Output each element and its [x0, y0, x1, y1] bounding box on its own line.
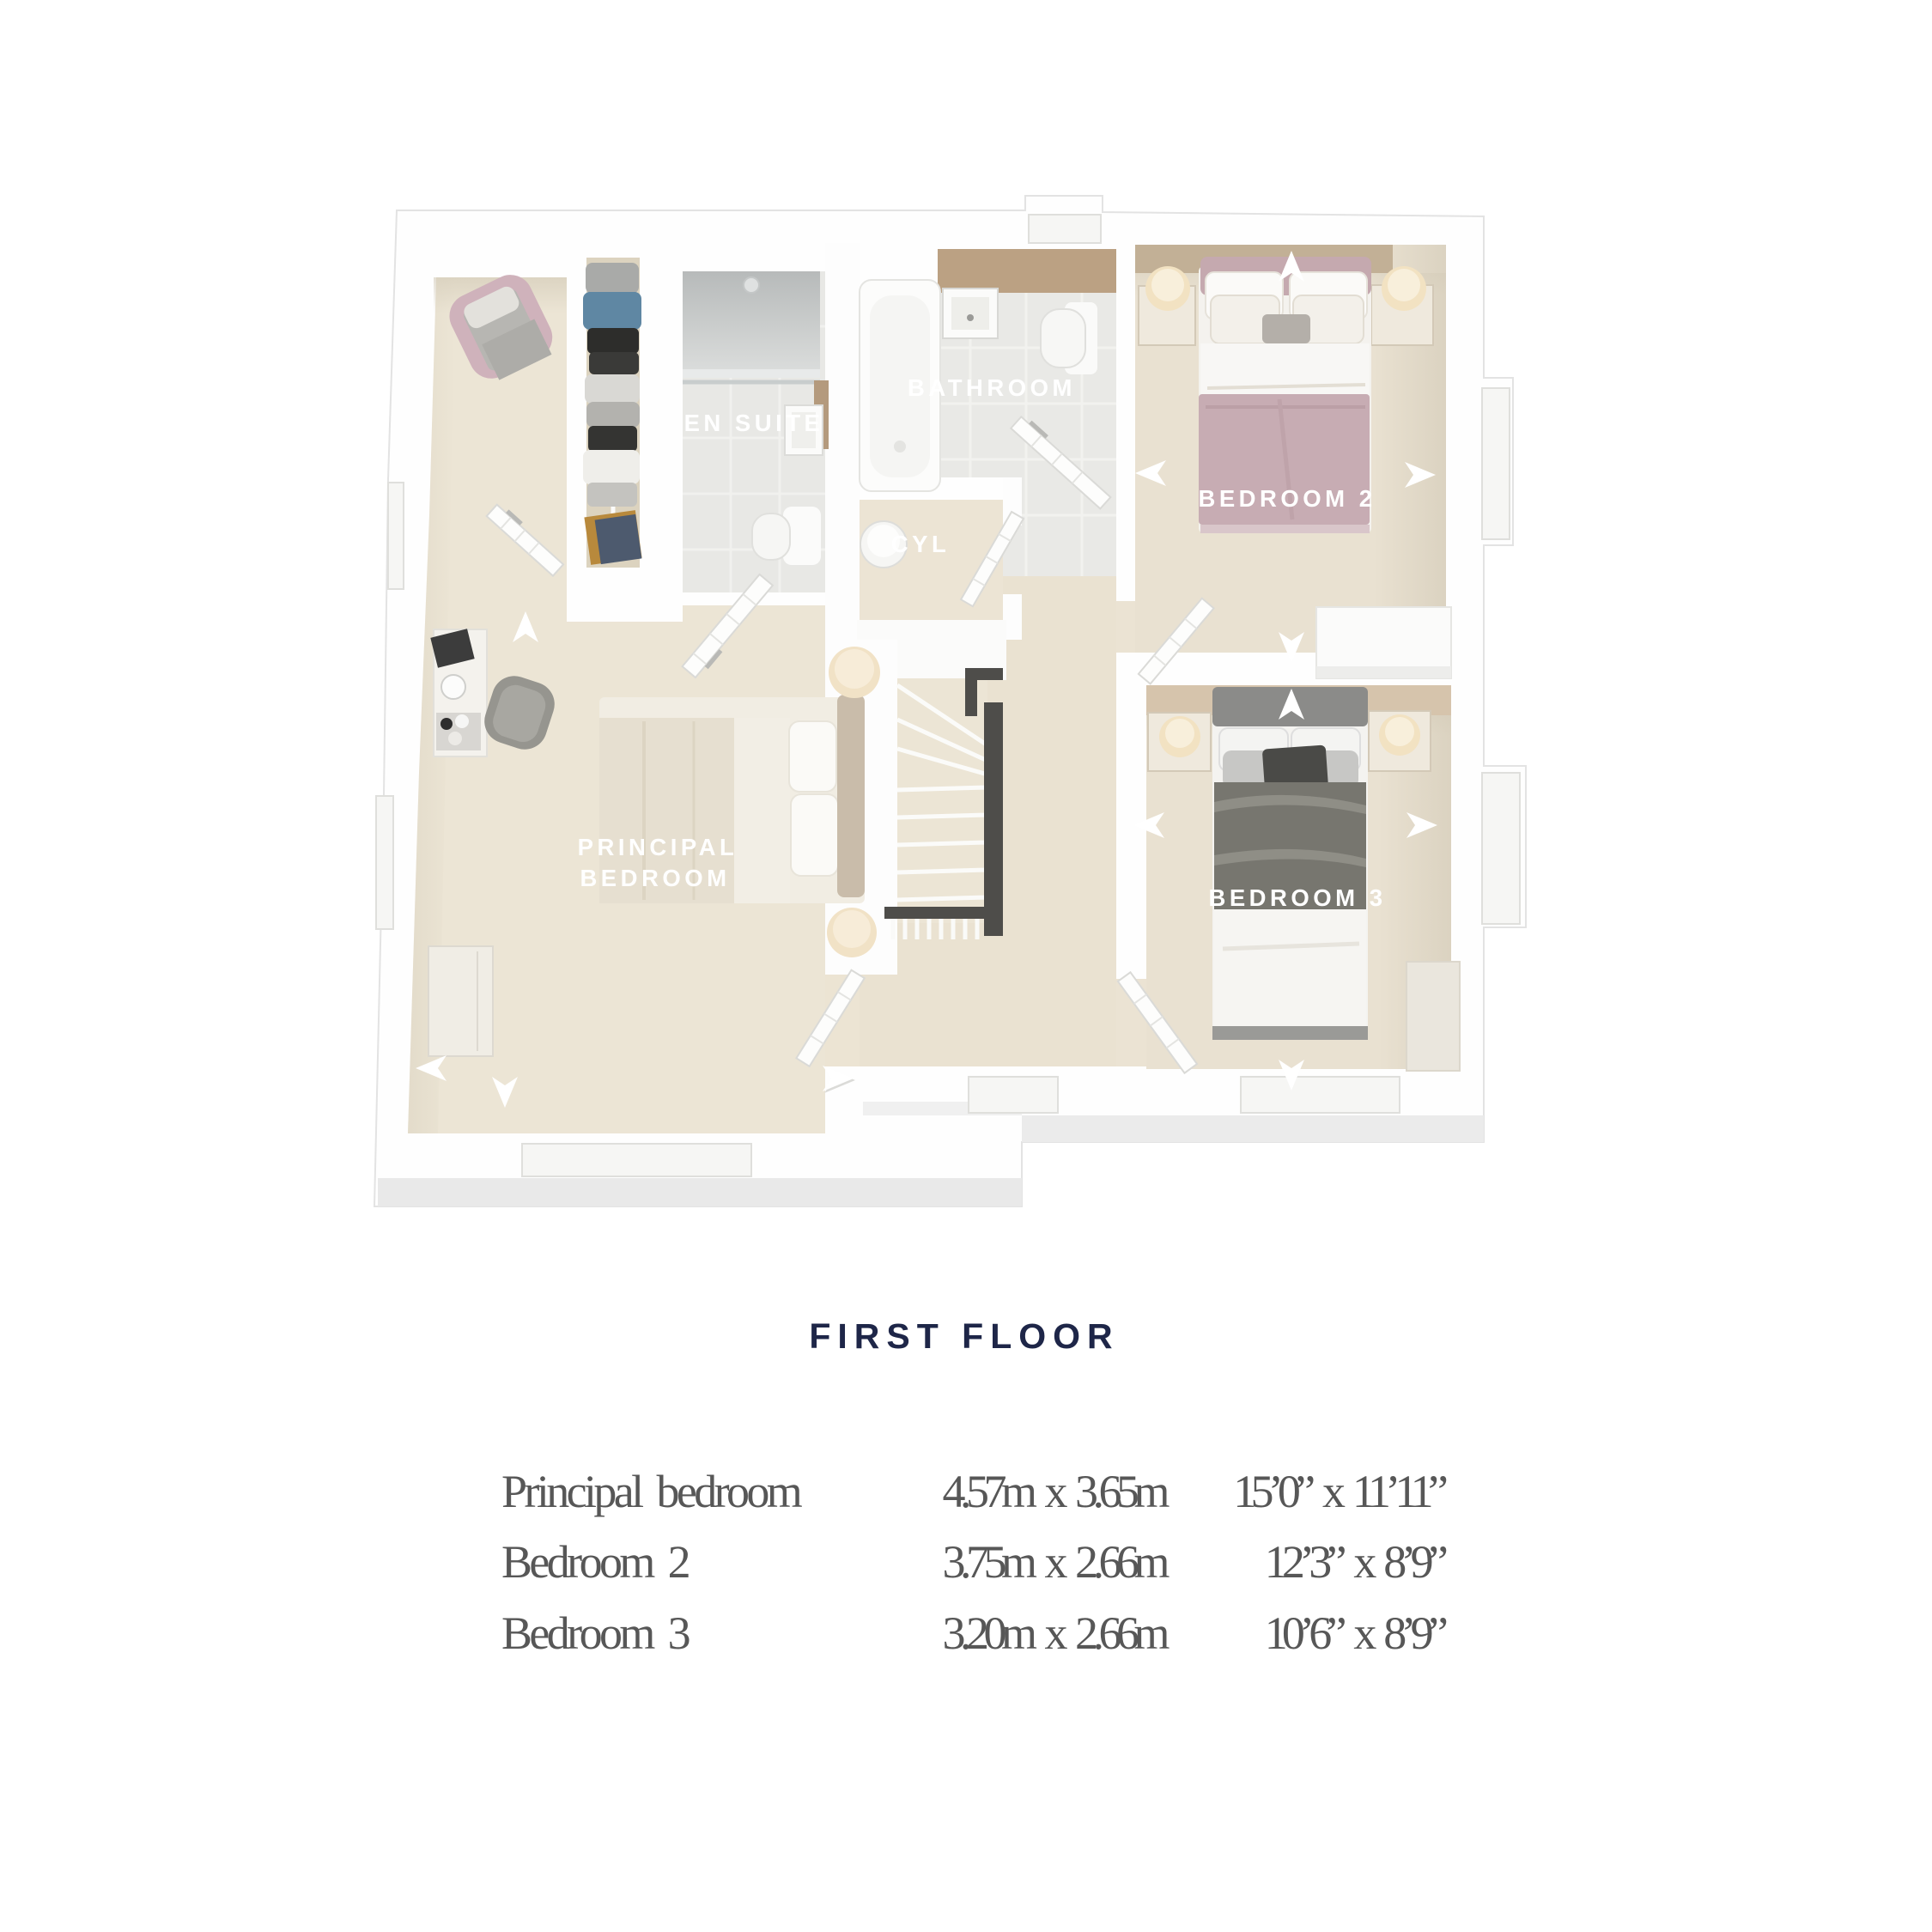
- svg-text:3.75m x 2.66m: 3.75m x 2.66m: [942, 1536, 1170, 1588]
- svg-text:PRINCIPAL: PRINCIPAL: [578, 834, 738, 860]
- svg-text:BATHROOM: BATHROOM: [908, 374, 1076, 401]
- svg-text:CYL: CYL: [891, 531, 951, 557]
- svg-text:Bedroom 3: Bedroom 3: [501, 1607, 690, 1659]
- svg-text:10’6” x 8’9”: 10’6” x 8’9”: [1265, 1607, 1447, 1659]
- svg-text:Principal bedroom: Principal bedroom: [501, 1466, 803, 1517]
- svg-text:EN SUITE: EN SUITE: [684, 410, 824, 436]
- svg-text:3.20m x 2.66m: 3.20m x 2.66m: [942, 1607, 1170, 1659]
- svg-text:12’3” x 8’9”: 12’3” x 8’9”: [1265, 1536, 1447, 1588]
- svg-text:FIRST FLOOR: FIRST FLOOR: [809, 1316, 1119, 1356]
- svg-text:4.57m x 3.65m: 4.57m x 3.65m: [942, 1466, 1170, 1517]
- svg-text:15’0” x 11’11”: 15’0” x 11’11”: [1233, 1466, 1447, 1517]
- svg-text:BEDROOM 3: BEDROOM 3: [1208, 884, 1386, 911]
- svg-text:BEDROOM 2: BEDROOM 2: [1198, 485, 1376, 512]
- svg-text:BEDROOM: BEDROOM: [580, 865, 730, 891]
- svg-text:Bedroom 2: Bedroom 2: [501, 1536, 690, 1588]
